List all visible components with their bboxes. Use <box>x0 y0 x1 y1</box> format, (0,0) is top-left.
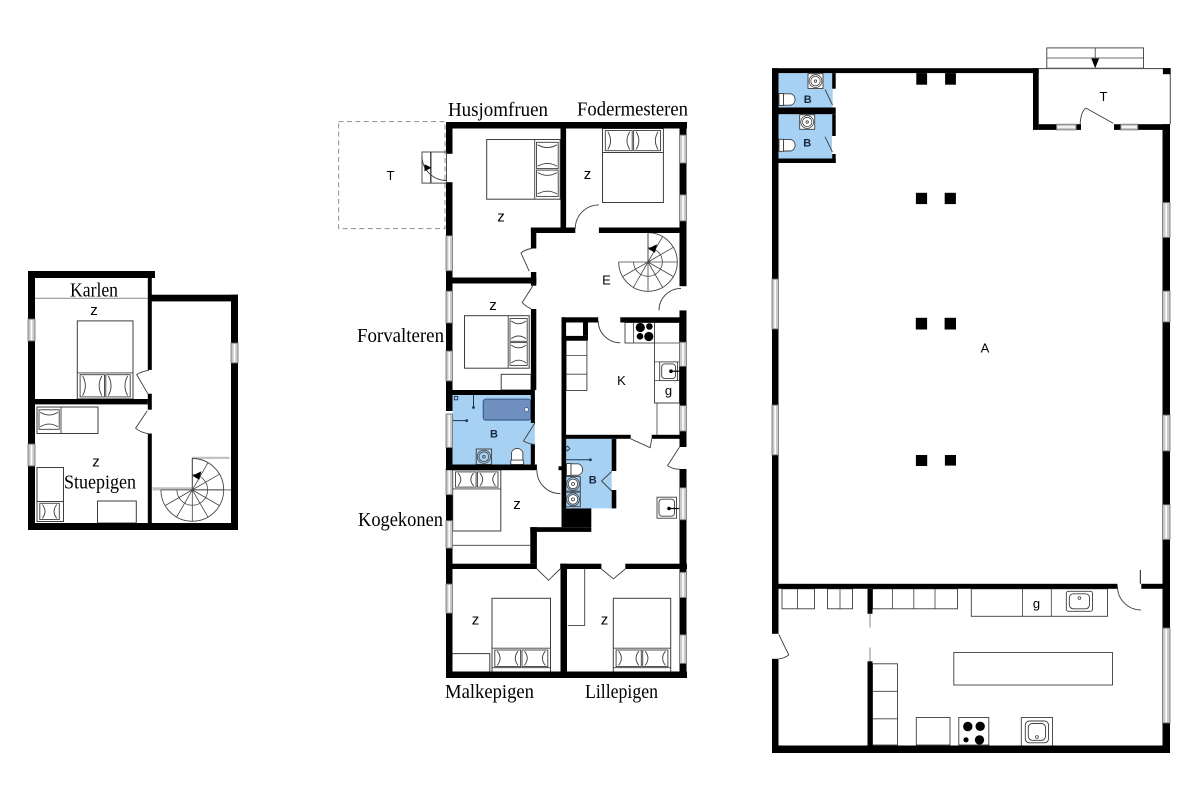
svg-text:Lillepigen: Lillepigen <box>585 681 658 703</box>
svg-text:z: z <box>601 612 609 629</box>
svg-text:Forvalteren: Forvalteren <box>357 325 444 347</box>
svg-text:B: B <box>490 429 498 441</box>
svg-text:Husjomfruen: Husjomfruen <box>448 99 548 121</box>
svg-text:z: z <box>92 454 100 471</box>
svg-text:g: g <box>1033 596 1040 611</box>
svg-text:B: B <box>803 138 811 150</box>
svg-text:z: z <box>497 209 505 226</box>
svg-text:A: A <box>981 341 990 356</box>
svg-text:Karlen: Karlen <box>70 280 118 302</box>
svg-text:g: g <box>665 383 672 398</box>
svg-text:B: B <box>804 94 812 106</box>
svg-text:Malkepigen: Malkepigen <box>445 681 534 703</box>
svg-text:z: z <box>513 496 521 513</box>
svg-text:Kogekonen: Kogekonen <box>358 509 443 531</box>
svg-text:z: z <box>584 166 592 183</box>
svg-text:z: z <box>90 302 98 319</box>
svg-text:K: K <box>617 373 626 388</box>
svg-text:z: z <box>472 612 480 629</box>
svg-text:Stuepigen: Stuepigen <box>64 472 136 494</box>
svg-text:E: E <box>602 273 611 288</box>
svg-text:T: T <box>387 168 395 183</box>
svg-text:z: z <box>489 297 497 314</box>
svg-text:Fodermesteren: Fodermesteren <box>577 99 688 121</box>
svg-text:T: T <box>1100 89 1108 104</box>
svg-text:B: B <box>589 475 597 487</box>
